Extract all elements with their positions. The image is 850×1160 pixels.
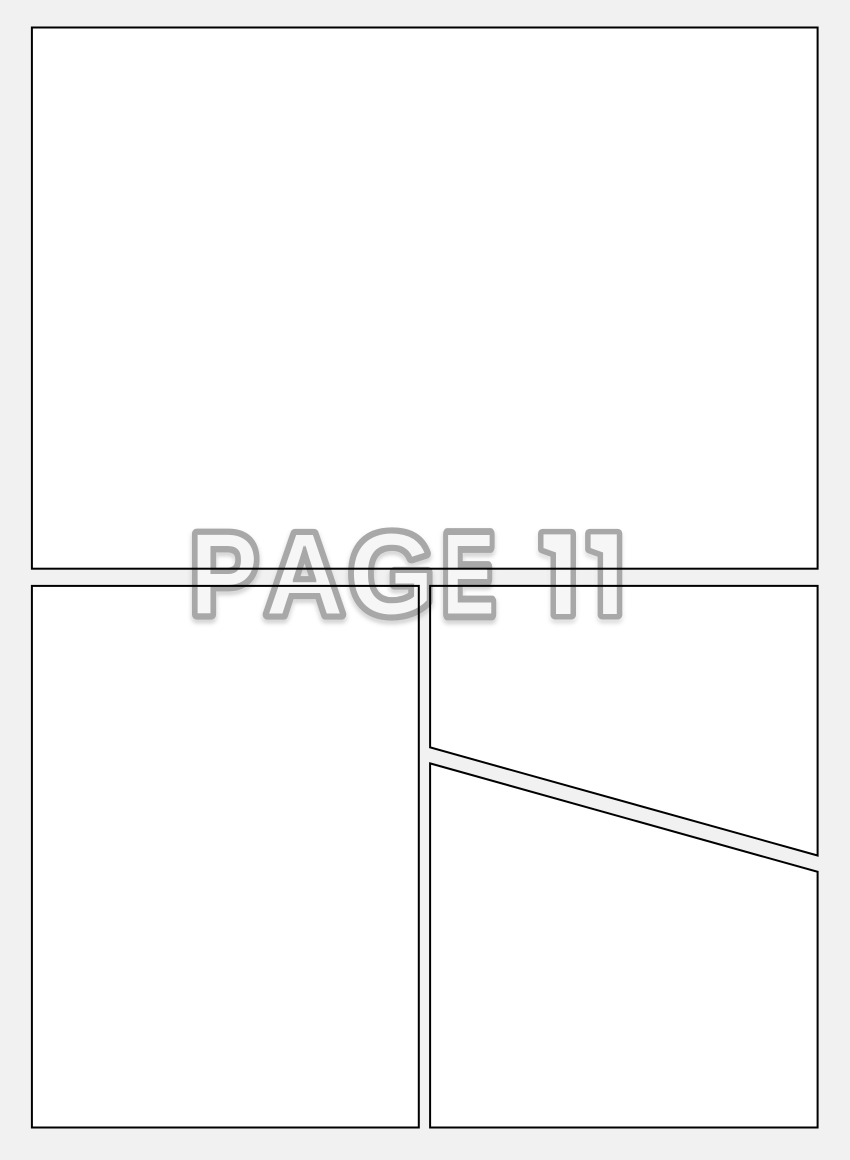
svg-text:P: P [190, 509, 259, 640]
svg-text:A: A [265, 509, 345, 640]
svg-text:E: E [442, 510, 496, 641]
svg-text:G: G [348, 510, 434, 640]
